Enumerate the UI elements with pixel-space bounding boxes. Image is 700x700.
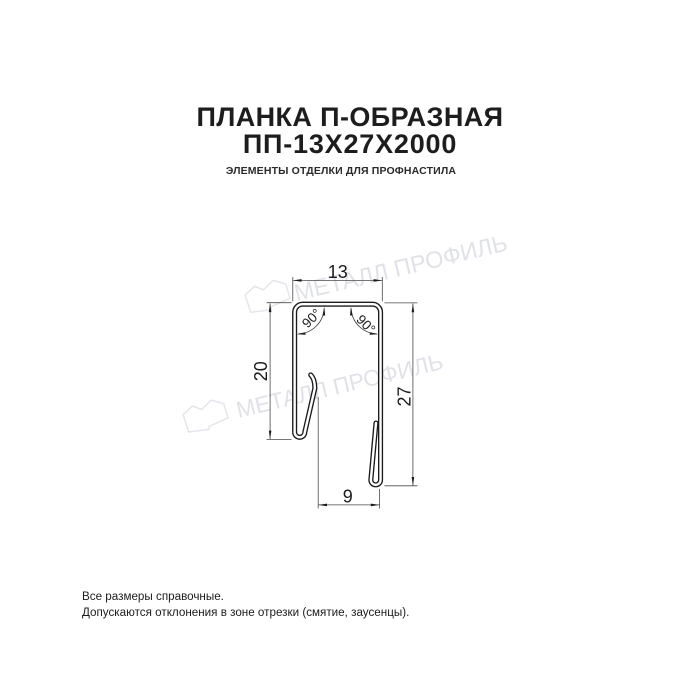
svg-text:90°: 90°	[353, 312, 378, 337]
svg-text:27: 27	[395, 386, 415, 406]
svg-text:13: 13	[328, 262, 348, 282]
svg-text:20: 20	[251, 361, 271, 381]
svg-text:90°: 90°	[299, 306, 324, 331]
svg-text:9: 9	[343, 487, 353, 507]
